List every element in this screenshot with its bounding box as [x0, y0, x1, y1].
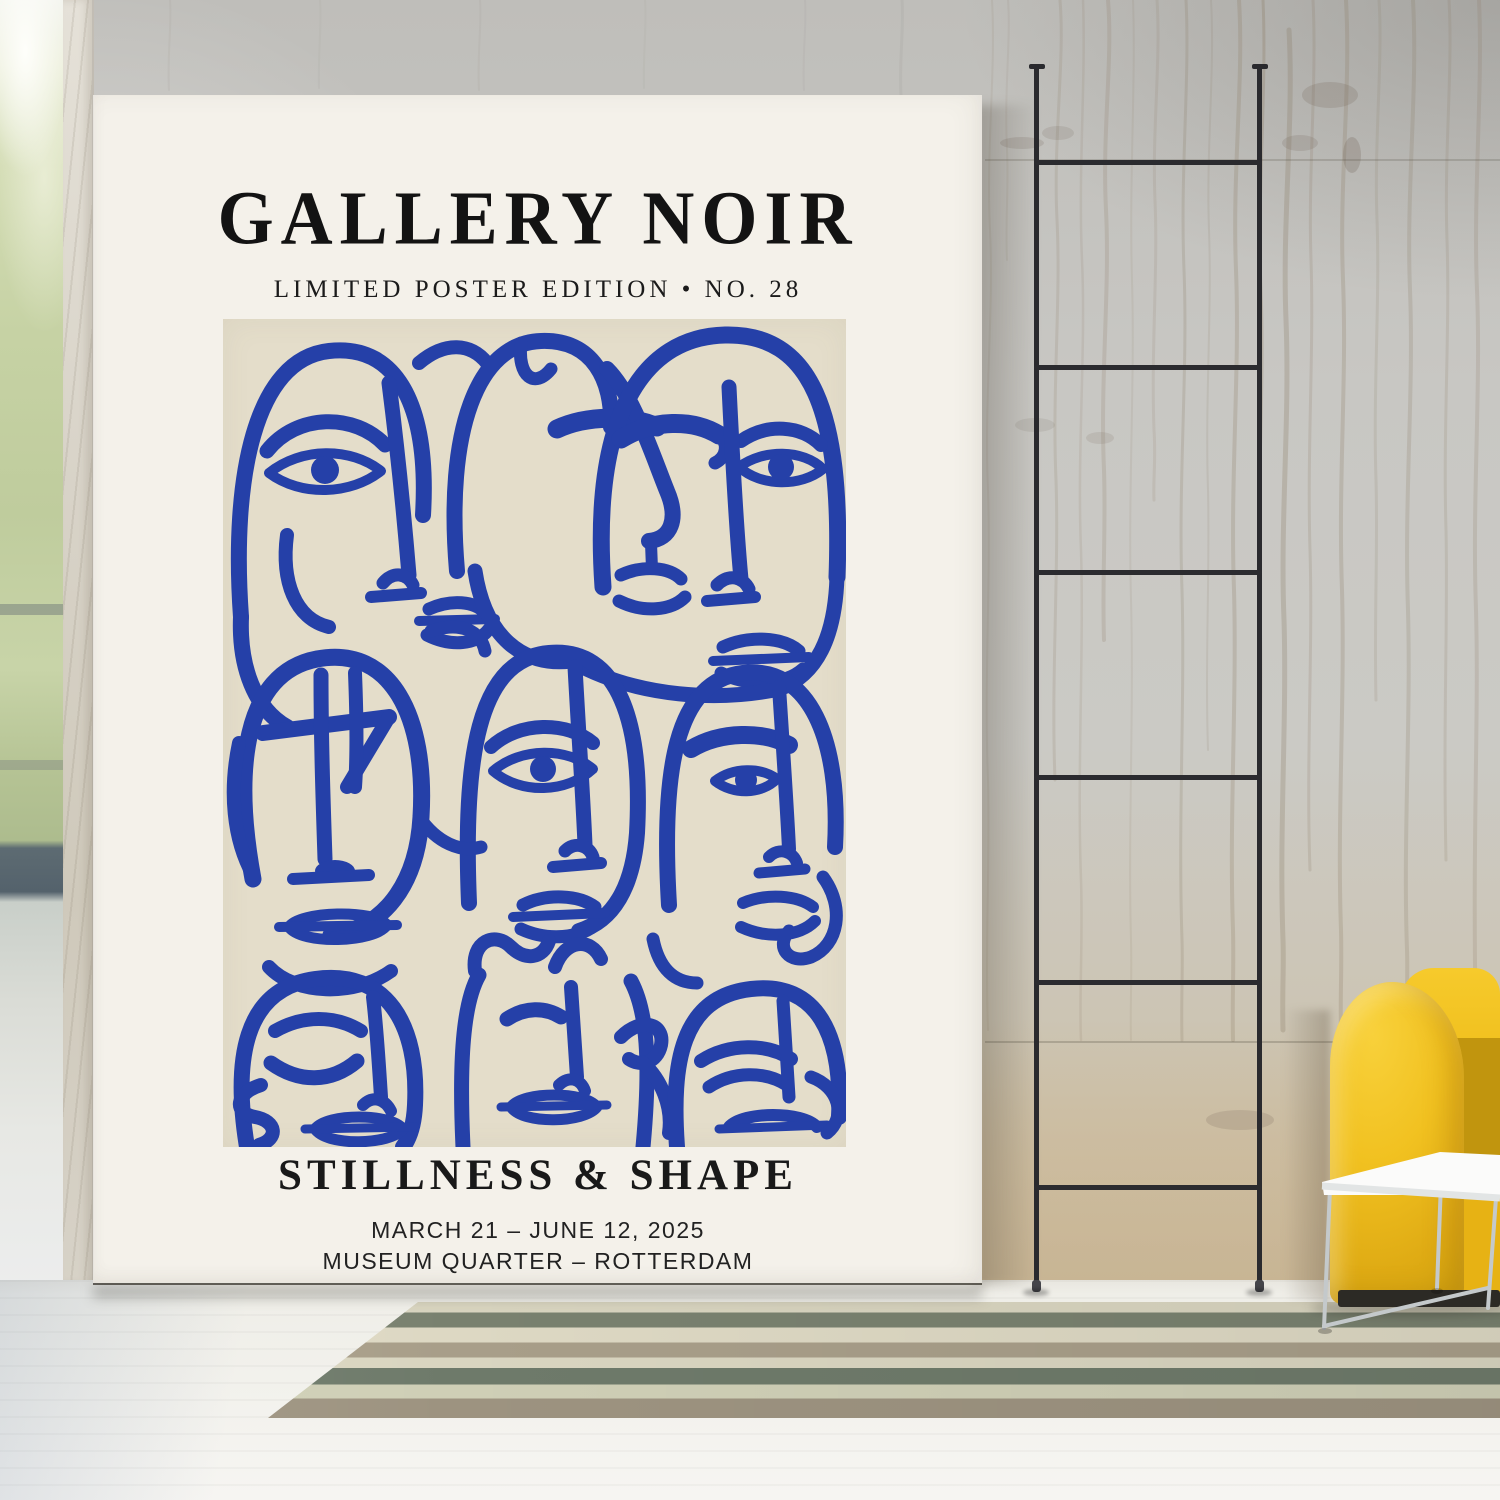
ladder-rung — [1034, 1185, 1262, 1190]
artwork-panel — [223, 319, 846, 1147]
ladder-foot-shadow — [1246, 1289, 1272, 1296]
window-light-glow — [0, 0, 63, 640]
poster-cast-shadow — [975, 105, 1037, 1285]
window-mullion-concrete — [63, 0, 94, 1285]
ladder-rung — [1034, 775, 1262, 780]
exhibition-dates: MARCH 21 – JUNE 12, 2025 — [94, 1215, 982, 1246]
exhibition-meta: MARCH 21 – JUNE 12, 2025 MUSEUM QUARTER … — [94, 1215, 982, 1277]
coffee-table — [1300, 1140, 1500, 1340]
ladder-rail — [1034, 66, 1039, 1287]
ladder-rung — [1034, 365, 1262, 370]
poster-floor-shadow — [93, 1286, 982, 1298]
poster-title: GALLERY NOIR — [94, 175, 982, 263]
interior-scene: GALLERY NOIR LIMITED POSTER EDITION • NO… — [0, 0, 1500, 1500]
window-transom-bar — [0, 760, 63, 770]
artwork-faces-illustration — [223, 319, 846, 1147]
window-transom-bar — [0, 604, 63, 615]
ladder-rung — [1034, 570, 1262, 575]
poster-subtitle: LIMITED POSTER EDITION • NO. 28 — [94, 276, 982, 304]
exhibition-location: MUSEUM QUARTER – ROTTERDAM — [94, 1246, 982, 1277]
gallery-poster: GALLERY NOIR LIMITED POSTER EDITION • NO… — [93, 95, 982, 1283]
ladder-foot-shadow — [1023, 1289, 1049, 1296]
ladder-rung — [1034, 160, 1262, 165]
ladder-rung — [1034, 980, 1262, 985]
exhibition-title: STILLNESS & SHAPE — [94, 1151, 982, 1200]
ladder-rail — [1257, 66, 1262, 1287]
